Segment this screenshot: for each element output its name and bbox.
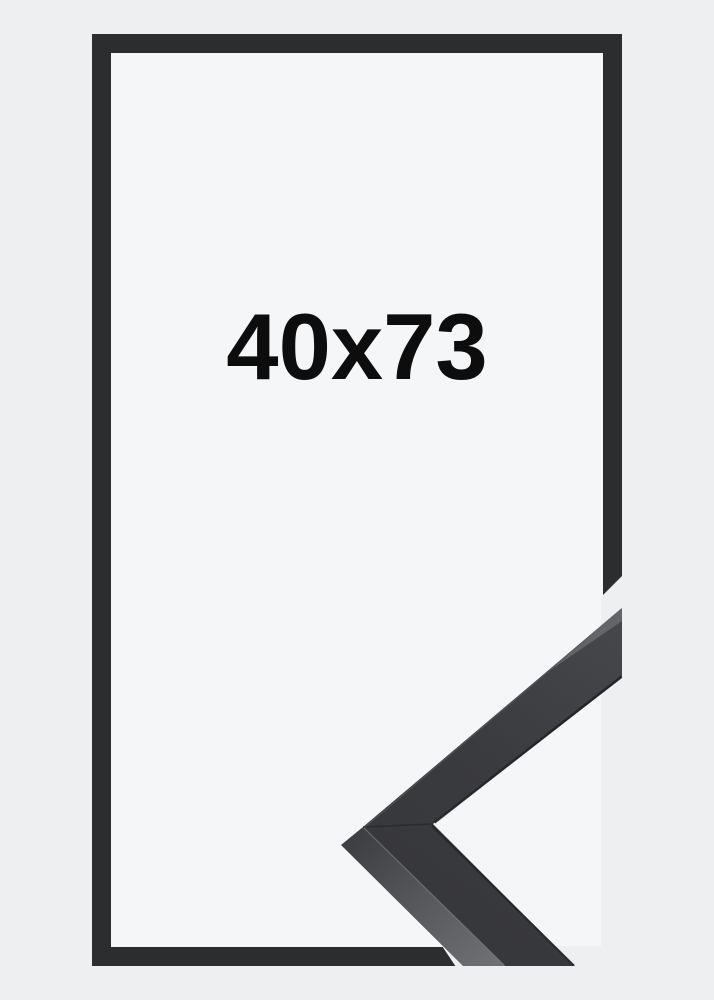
frame-interior bbox=[111, 53, 603, 947]
product-graphic bbox=[0, 0, 714, 1000]
size-label: 40x73 bbox=[92, 300, 622, 394]
product-photo-stage: 40x73 bbox=[0, 0, 714, 1000]
